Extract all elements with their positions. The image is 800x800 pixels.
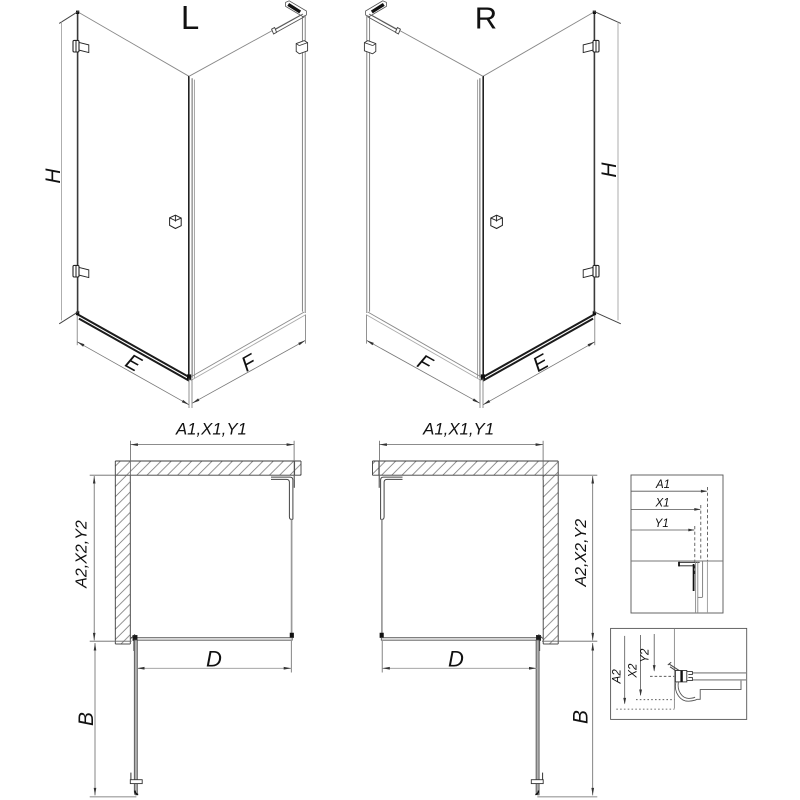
svg-text:A1: A1 bbox=[655, 479, 670, 491]
svg-text:Y1: Y1 bbox=[655, 518, 669, 530]
svg-text:R: R bbox=[475, 1, 497, 36]
svg-text:A1,X1,Y1: A1,X1,Y1 bbox=[422, 420, 494, 439]
svg-text:A1,X1,Y1: A1,X1,Y1 bbox=[175, 420, 247, 439]
svg-text:L: L bbox=[181, 0, 199, 36]
svg-text:Y2: Y2 bbox=[640, 648, 652, 663]
svg-text:H: H bbox=[42, 168, 65, 184]
svg-text:B: B bbox=[75, 712, 98, 726]
svg-text:D: D bbox=[448, 647, 464, 672]
svg-text:X1: X1 bbox=[654, 498, 669, 510]
svg-text:D: D bbox=[206, 647, 222, 672]
svg-text:A2,X2,Y2: A2,X2,Y2 bbox=[74, 520, 91, 589]
svg-text:A2,X2,Y2: A2,X2,Y2 bbox=[573, 519, 590, 588]
svg-text:F: F bbox=[413, 350, 436, 377]
svg-text:X2: X2 bbox=[628, 663, 640, 679]
svg-text:A2: A2 bbox=[612, 669, 624, 685]
svg-text:F: F bbox=[238, 350, 261, 377]
svg-text:B: B bbox=[570, 710, 593, 724]
svg-text:H: H bbox=[598, 162, 621, 178]
